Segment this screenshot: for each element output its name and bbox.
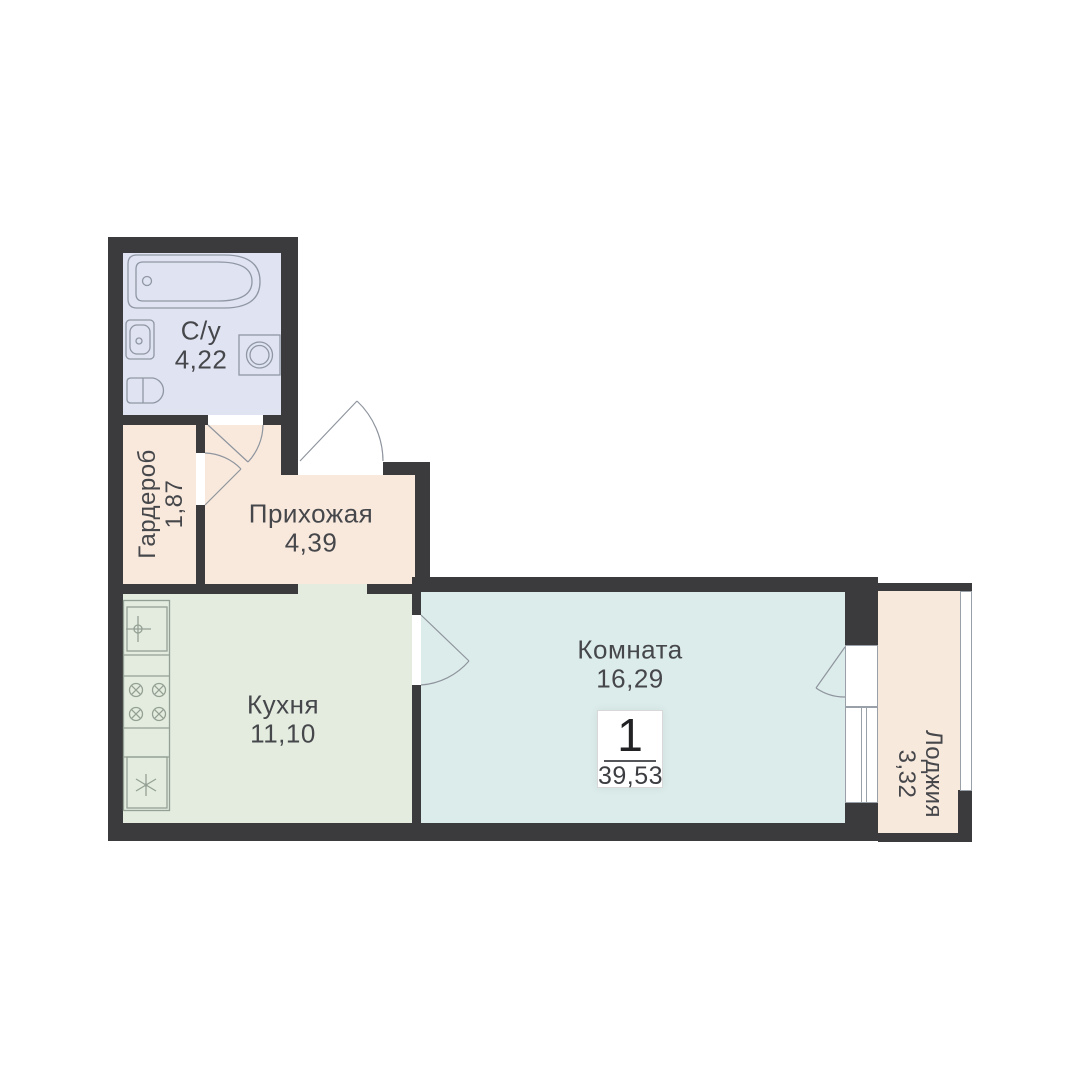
room-name: Комната xyxy=(577,636,682,665)
wall-left xyxy=(108,237,123,841)
wall-wardrobe-partition-bottom xyxy=(196,505,205,584)
wall-kitchen-room-partition-bottom xyxy=(412,685,421,823)
room-name: Прихожая xyxy=(249,500,373,529)
room-area: 3,32 xyxy=(893,730,920,818)
room-name: С/у xyxy=(175,317,228,346)
wall-entry-right xyxy=(383,462,430,475)
wall-room-top xyxy=(412,577,878,592)
living-room-label: Комната 16,29 xyxy=(577,636,682,695)
wall-bathroom-right xyxy=(281,237,298,475)
wall-balcony-divider-bottom xyxy=(845,802,878,841)
wall-loggia-bottom xyxy=(878,833,972,842)
wall-bottom xyxy=(108,823,878,841)
room-name: Кухня xyxy=(247,691,319,720)
room-name: Гардероб xyxy=(134,449,161,559)
floor-plan-canvas: С/у 4,22 Гардероб 1,87 Прихожая 4,39 Кух… xyxy=(0,0,1080,1080)
balcony-door xyxy=(846,646,878,707)
rooms-count: 1 xyxy=(598,712,662,758)
room-area: 4,39 xyxy=(249,529,373,558)
wall-kitchen-room-partition-top xyxy=(412,592,421,615)
wall-balcony-divider-top xyxy=(845,577,878,645)
entry-door-swing-icon xyxy=(300,401,383,461)
wall-kitchen-top-right xyxy=(367,584,415,594)
wall-bathroom-bottom-right xyxy=(263,415,281,425)
wall-bathroom-bottom-left xyxy=(123,415,208,425)
total-area: 39,53 xyxy=(598,763,662,789)
hallway-label: Прихожая 4,39 xyxy=(249,500,373,559)
unit-info-badge: 1 39,53 xyxy=(597,710,663,788)
wall-loggia-corner xyxy=(958,790,972,842)
wall-hallway-right xyxy=(415,475,430,584)
room-area: 11,10 xyxy=(247,720,319,749)
room-name: Лоджия xyxy=(920,730,947,818)
loggia-label: Лоджия 3,32 xyxy=(893,730,947,818)
kitchen-label: Кухня 11,10 xyxy=(247,691,319,750)
room-area: 4,22 xyxy=(175,346,228,375)
wall-wardrobe-partition-top xyxy=(196,415,205,453)
loggia-glazing xyxy=(961,592,972,791)
wardrobe-label: Гардероб 1,87 xyxy=(134,449,188,559)
room-area: 1,87 xyxy=(161,449,188,559)
room-area: 16,29 xyxy=(577,665,682,694)
wall-kitchen-top-left xyxy=(123,584,298,594)
wall-loggia-top xyxy=(878,583,972,591)
bathroom-label: С/у 4,22 xyxy=(175,317,228,376)
wall-top xyxy=(108,237,298,253)
